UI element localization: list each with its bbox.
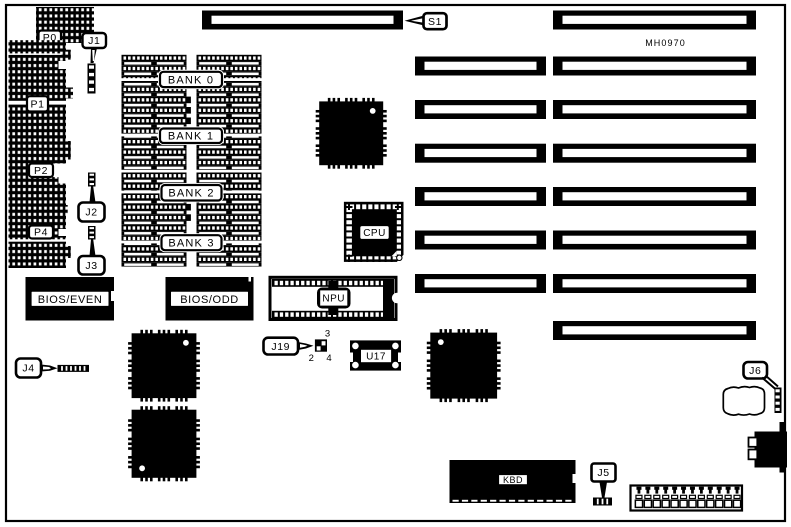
svg-text:S1: S1 — [428, 16, 442, 28]
svg-text:J1: J1 — [88, 35, 100, 47]
svg-text:4: 4 — [326, 353, 331, 364]
svg-text:J3: J3 — [85, 260, 97, 272]
svg-text:J2: J2 — [85, 207, 97, 219]
svg-text:2: 2 — [309, 353, 314, 364]
svg-text:J19: J19 — [271, 341, 290, 353]
svg-text:P4: P4 — [34, 227, 48, 239]
svg-text:P2: P2 — [34, 165, 48, 177]
svg-text:U17: U17 — [366, 352, 386, 363]
svg-text:J5: J5 — [597, 467, 609, 479]
svg-text:NPU: NPU — [322, 294, 345, 305]
svg-text:BANK 2: BANK 2 — [168, 188, 214, 200]
svg-text:3: 3 — [325, 328, 330, 339]
svg-text:J6: J6 — [749, 365, 761, 377]
svg-text:KBD: KBD — [503, 475, 523, 485]
svg-text:BANK 3: BANK 3 — [168, 238, 214, 250]
svg-text:J4: J4 — [22, 363, 34, 375]
svg-text:MH0970: MH0970 — [645, 38, 686, 48]
svg-text:CPU: CPU — [363, 228, 386, 239]
svg-text:BIOS/ODD: BIOS/ODD — [180, 294, 239, 306]
svg-text:BANK 0: BANK 0 — [168, 74, 214, 86]
svg-text:BANK 1: BANK 1 — [168, 131, 214, 143]
svg-text:P1: P1 — [30, 99, 44, 111]
svg-text:BIOS/EVEN: BIOS/EVEN — [38, 294, 103, 306]
